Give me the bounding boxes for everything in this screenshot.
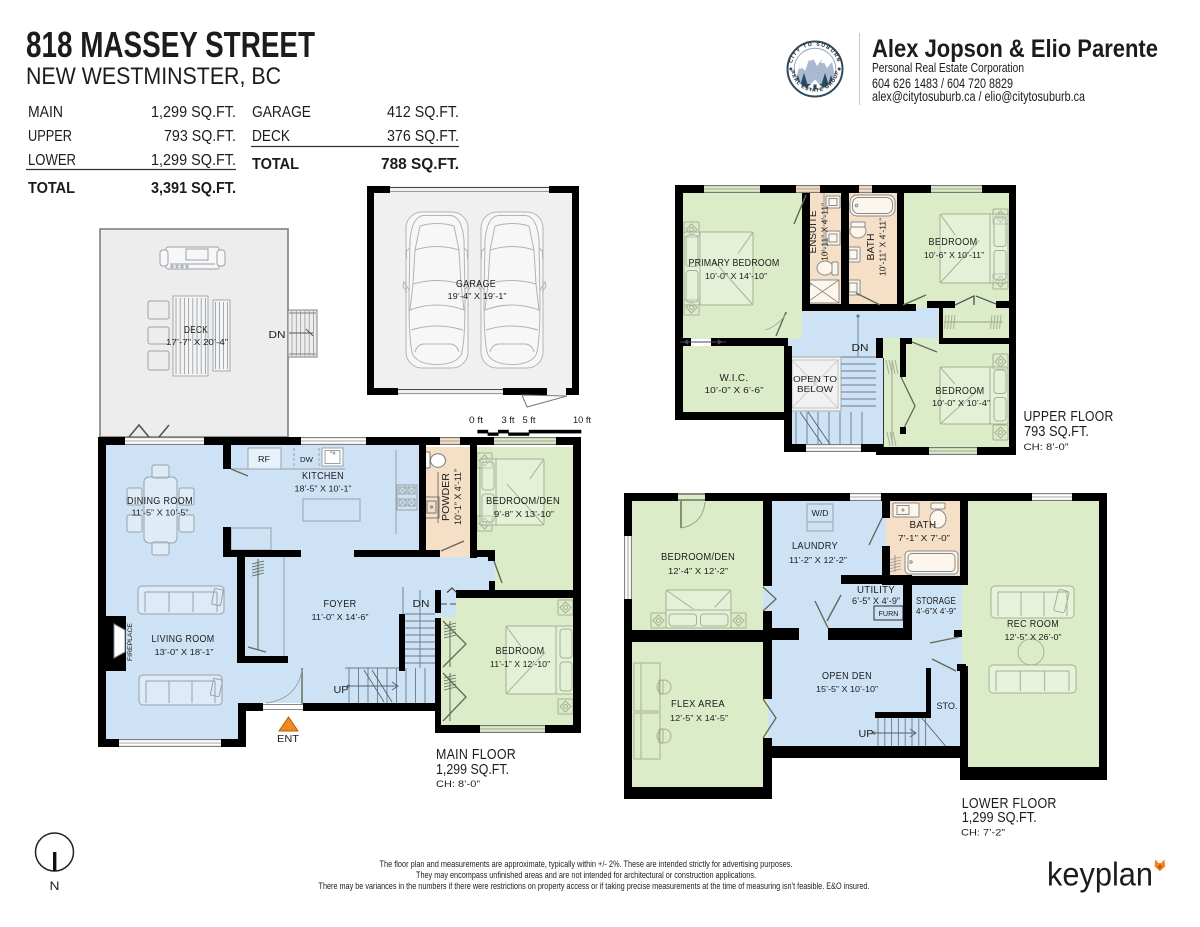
- svg-text:The floor plan and measurement: The floor plan and measurements are appr…: [380, 859, 793, 869]
- svg-text:LIVING ROOM: LIVING ROOM: [152, 633, 215, 645]
- svg-text:CH: 8’-0”: CH: 8’-0”: [436, 779, 480, 790]
- svg-text:10’-11” X 4’-11”: 10’-11” X 4’-11”: [820, 203, 830, 261]
- svg-text:W/D: W/D: [812, 509, 829, 518]
- svg-text:UPPER FLOOR: UPPER FLOOR: [1024, 409, 1114, 425]
- svg-text:10’-1” X 4’-11”: 10’-1” X 4’-11”: [453, 469, 463, 525]
- svg-text:FIREPLACE: FIREPLACE: [127, 622, 134, 661]
- svg-text:4’-6”X 4’-9”: 4’-6”X 4’-9”: [916, 606, 956, 616]
- svg-text:There may be variances in the: There may be variances in the numbers if…: [319, 881, 870, 891]
- svg-text:DECK: DECK: [184, 324, 208, 336]
- svg-text:GARAGE: GARAGE: [252, 104, 311, 121]
- svg-text:MAIN FLOOR: MAIN FLOOR: [436, 747, 516, 763]
- svg-text:BEDROOM: BEDROOM: [929, 236, 978, 248]
- svg-text:BEDROOM: BEDROOM: [496, 645, 545, 657]
- svg-text:ENT: ENT: [277, 734, 299, 745]
- svg-text:788 SQ.FT.: 788 SQ.FT.: [381, 156, 459, 173]
- svg-text:N: N: [50, 879, 60, 893]
- svg-text:FOYER: FOYER: [324, 598, 357, 610]
- svg-text:POWDER: POWDER: [440, 473, 452, 521]
- svg-text:DINING ROOM: DINING ROOM: [127, 495, 193, 507]
- svg-text:12’-5” X 14’-5”: 12’-5” X 14’-5”: [670, 713, 728, 723]
- svg-text:376 SQ.FT.: 376 SQ.FT.: [387, 128, 459, 145]
- svg-text:OPEN DEN: OPEN DEN: [822, 670, 872, 682]
- svg-text:1,299 SQ.FT.: 1,299 SQ.FT.: [151, 104, 236, 121]
- svg-text:GARAGE: GARAGE: [456, 278, 496, 290]
- svg-text:BATH: BATH: [866, 234, 877, 261]
- svg-text:12’-5” X 26’-0”: 12’-5” X 26’-0”: [1005, 632, 1062, 642]
- svg-text:11’-5” X 10’-5”: 11’-5” X 10’-5”: [132, 508, 189, 518]
- svg-text:CH: 8’-0”: CH: 8’-0”: [1024, 442, 1069, 453]
- svg-text:keyplan: keyplan: [1047, 857, 1153, 894]
- svg-text:FLEX AREA: FLEX AREA: [671, 698, 725, 710]
- svg-text:DN: DN: [269, 329, 286, 341]
- svg-text:10’-0” X 6’-6”: 10’-0” X 6’-6”: [705, 385, 764, 395]
- svg-text:11’-0” X 14’-6”: 11’-0” X 14’-6”: [312, 612, 369, 622]
- svg-text:UP: UP: [859, 728, 874, 740]
- svg-text:DN: DN: [852, 342, 869, 354]
- svg-text:PRIMARY BEDROOM: PRIMARY BEDROOM: [689, 257, 780, 269]
- svg-text:5 ft: 5 ft: [523, 415, 536, 426]
- svg-text:W.I.C.: W.I.C.: [720, 372, 749, 384]
- svg-text:10’-11” X 4’-11”: 10’-11” X 4’-11”: [878, 218, 888, 276]
- svg-text:11’-2” X 12’-2”: 11’-2” X 12’-2”: [789, 555, 847, 565]
- svg-text:10’-6” X 10’-11”: 10’-6” X 10’-11”: [924, 250, 984, 260]
- svg-text:BELOW: BELOW: [797, 384, 834, 394]
- svg-text:12’-4” X 12’-2”: 12’-4” X 12’-2”: [668, 566, 728, 576]
- svg-text:10 ft: 10 ft: [573, 415, 591, 426]
- svg-text:793 SQ.FT.: 793 SQ.FT.: [1024, 424, 1089, 440]
- svg-text:UP: UP: [334, 684, 349, 696]
- svg-text:10’-0” X 10’-4”: 10’-0” X 10’-4”: [932, 398, 990, 408]
- svg-text:LAUNDRY: LAUNDRY: [792, 540, 838, 552]
- svg-text:DECK: DECK: [252, 128, 290, 145]
- svg-text:793 SQ.FT.: 793 SQ.FT.: [164, 128, 236, 145]
- svg-text:1,299 SQ.FT.: 1,299 SQ.FT.: [962, 810, 1037, 826]
- svg-text:FURN: FURN: [879, 611, 899, 618]
- svg-text:OPEN TO: OPEN TO: [793, 374, 837, 384]
- svg-text:MAIN: MAIN: [28, 104, 63, 121]
- svg-text:They may encompass unfinished: They may encompass unfinished areas and …: [416, 870, 756, 880]
- svg-text:3 ft: 3 ft: [502, 415, 515, 426]
- svg-text:0 ft: 0 ft: [469, 415, 483, 426]
- svg-text:RF: RF: [258, 455, 270, 464]
- svg-text:UTILITY: UTILITY: [857, 585, 895, 596]
- svg-text:1,299 SQ.FT.: 1,299 SQ.FT.: [436, 762, 509, 778]
- svg-text:TOTAL: TOTAL: [28, 180, 75, 197]
- svg-text:19’-4” X 19’-1”: 19’-4” X 19’-1”: [448, 291, 507, 301]
- svg-text:BATH: BATH: [910, 519, 937, 531]
- svg-text:UPPER: UPPER: [28, 128, 72, 145]
- svg-text:412 SQ.FT.: 412 SQ.FT.: [387, 104, 459, 121]
- svg-text:BEDROOM/DEN: BEDROOM/DEN: [486, 495, 560, 507]
- svg-text:9’-8” X 13’-10”: 9’-8” X 13’-10”: [494, 509, 554, 519]
- svg-text:6’-5” X 4’-9”: 6’-5” X 4’-9”: [852, 596, 900, 606]
- svg-text:3,391 SQ.FT.: 3,391 SQ.FT.: [151, 180, 236, 197]
- svg-text:LOWER: LOWER: [28, 152, 76, 169]
- svg-text:Personal Real Estate Corporati: Personal Real Estate Corporation: [872, 61, 1024, 75]
- svg-text:alex@citytosuburb.ca / elio@ci: alex@citytosuburb.ca / elio@citytosuburb…: [872, 88, 1085, 104]
- svg-text:BEDROOM: BEDROOM: [936, 385, 985, 397]
- svg-text:REC ROOM: REC ROOM: [1007, 618, 1059, 630]
- svg-text:7’-1” X 7’-0”: 7’-1” X 7’-0”: [898, 533, 950, 543]
- svg-text:15’-5” X 10’-10”: 15’-5” X 10’-10”: [816, 684, 878, 694]
- svg-text:BEDROOM/DEN: BEDROOM/DEN: [661, 551, 735, 563]
- svg-text:17’-7” X 20’-4”: 17’-7” X 20’-4”: [166, 337, 228, 347]
- svg-text:1,299 SQ.FT.: 1,299 SQ.FT.: [151, 152, 236, 169]
- svg-text:STO.: STO.: [937, 701, 958, 712]
- svg-text:DN: DN: [413, 598, 430, 610]
- svg-text:NEW WESTMINSTER, BC: NEW WESTMINSTER, BC: [26, 63, 281, 90]
- svg-text:10’-0” X 14’-10”: 10’-0” X 14’-10”: [705, 271, 767, 281]
- svg-text:KITCHEN: KITCHEN: [302, 470, 344, 482]
- svg-text:DW: DW: [300, 455, 314, 464]
- svg-text:818 MASSEY STREET: 818 MASSEY STREET: [26, 24, 315, 65]
- svg-text:Alex Jopson & Elio Parente: Alex Jopson & Elio Parente: [872, 35, 1158, 63]
- svg-text:TOTAL: TOTAL: [252, 156, 299, 173]
- svg-text:18’-5” X 10’-1”: 18’-5” X 10’-1”: [295, 484, 352, 494]
- svg-text:13’-0” X 18’-1”: 13’-0” X 18’-1”: [155, 647, 214, 657]
- svg-text:CH: 7’-2”: CH: 7’-2”: [961, 828, 1005, 839]
- svg-text:11’-1” X 12’-10”: 11’-1” X 12’-10”: [490, 659, 550, 669]
